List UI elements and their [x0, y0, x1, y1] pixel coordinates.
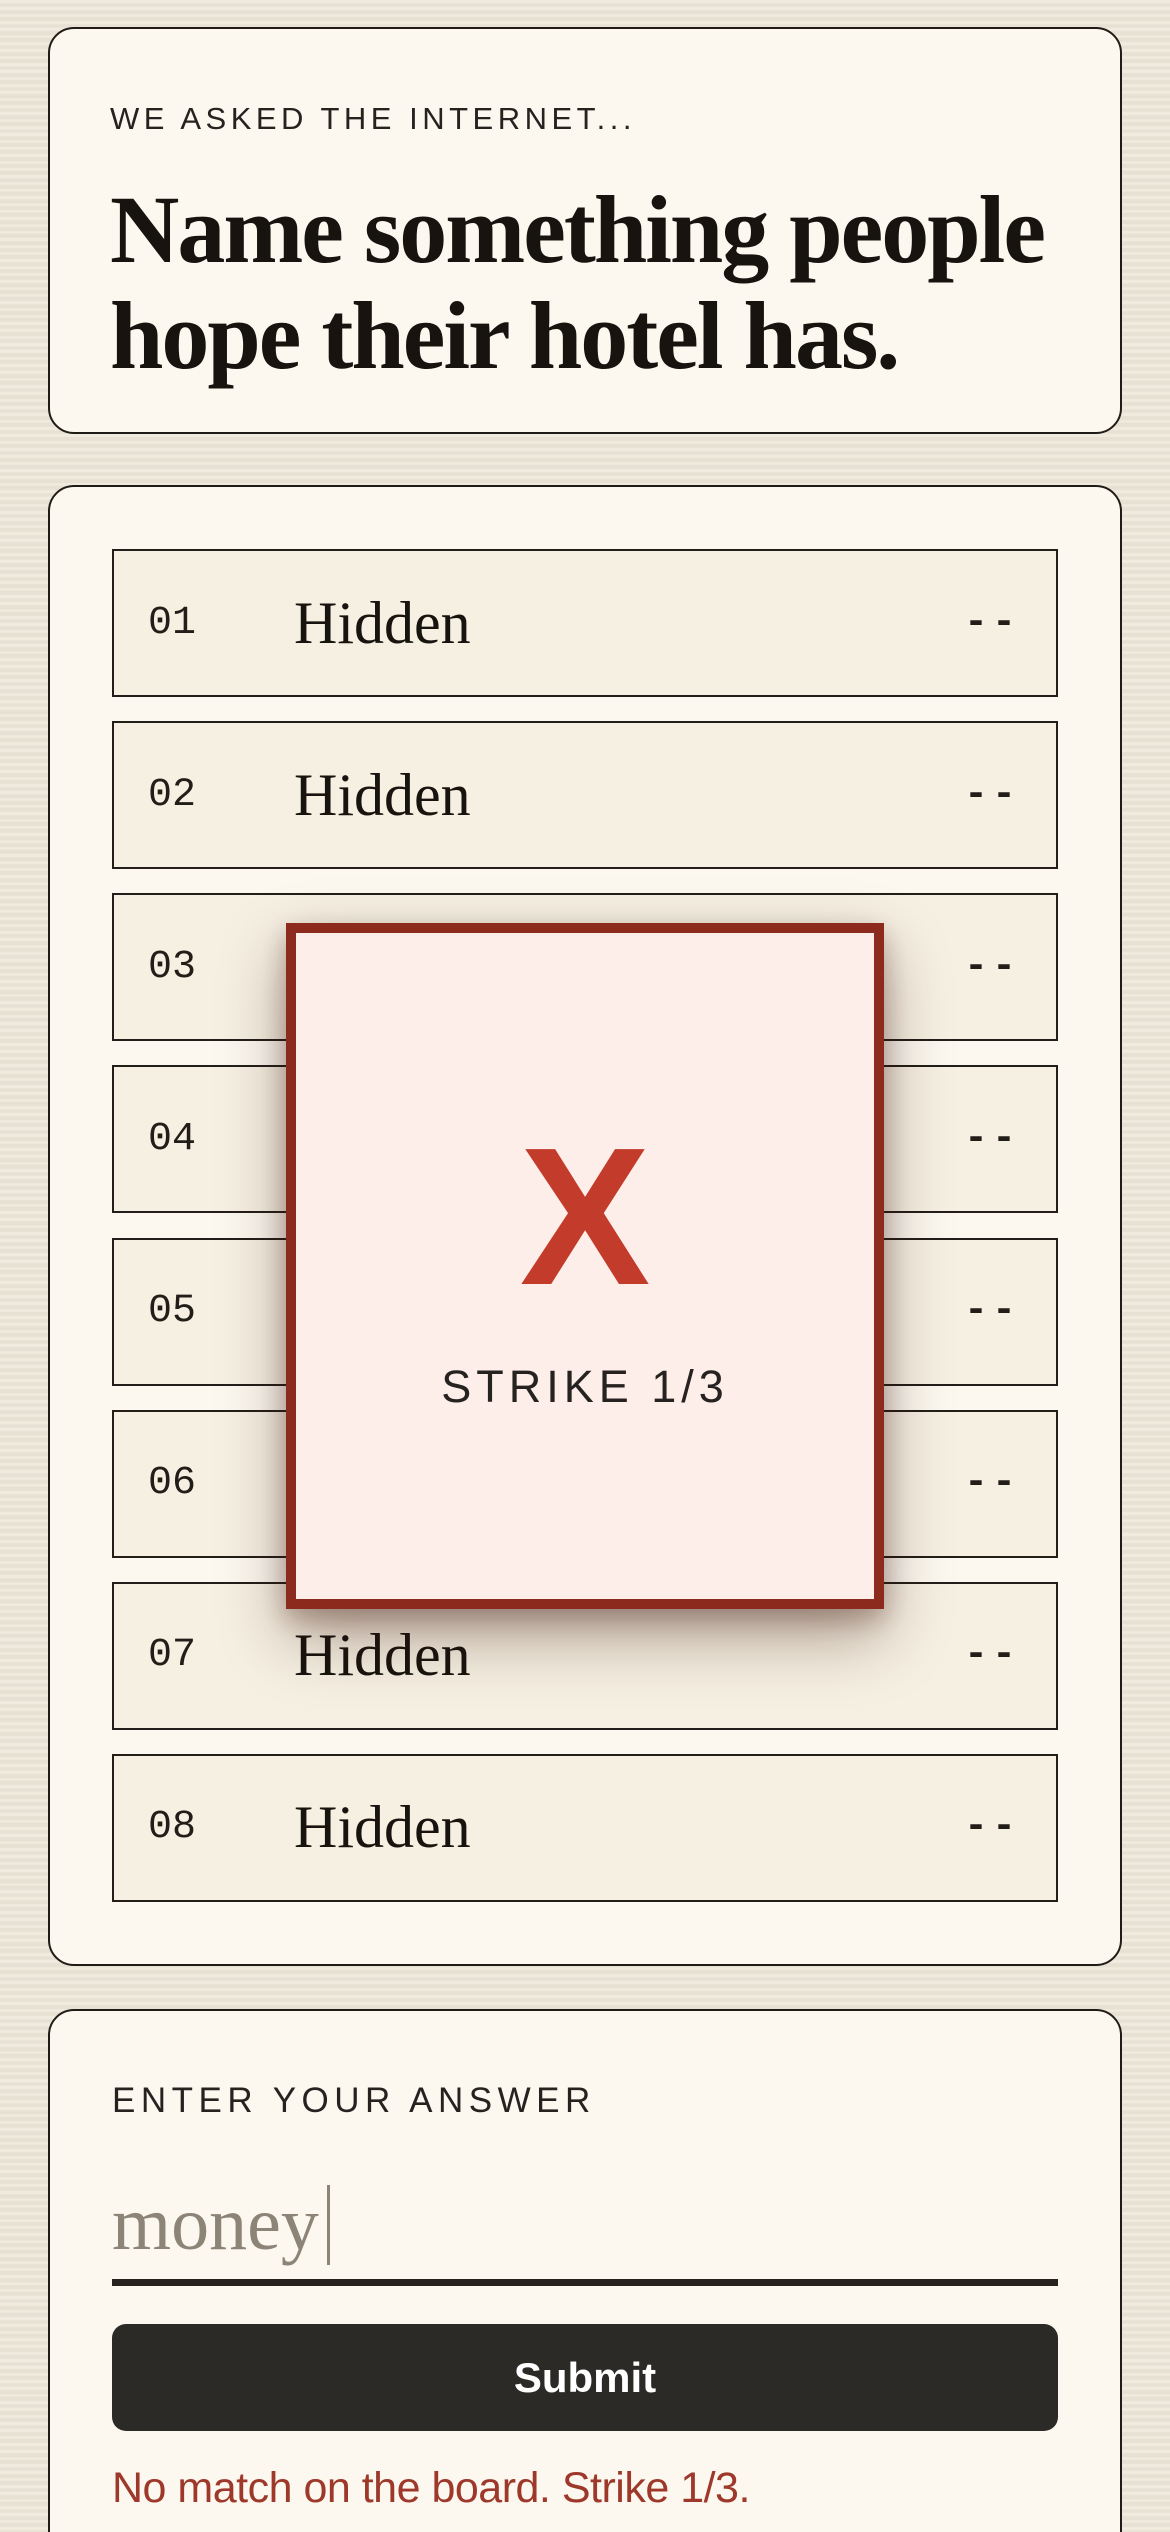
- game-screen: WE ASKED THE INTERNET... Name something …: [0, 27, 1170, 2532]
- strike-overlay: X STRIKE 1/3: [0, 0, 1170, 2532]
- strike-counter-label: STRIKE 1/3: [441, 1361, 729, 1413]
- strike-x-mark: X: [520, 1119, 651, 1315]
- strike-modal: X STRIKE 1/3: [286, 923, 884, 1609]
